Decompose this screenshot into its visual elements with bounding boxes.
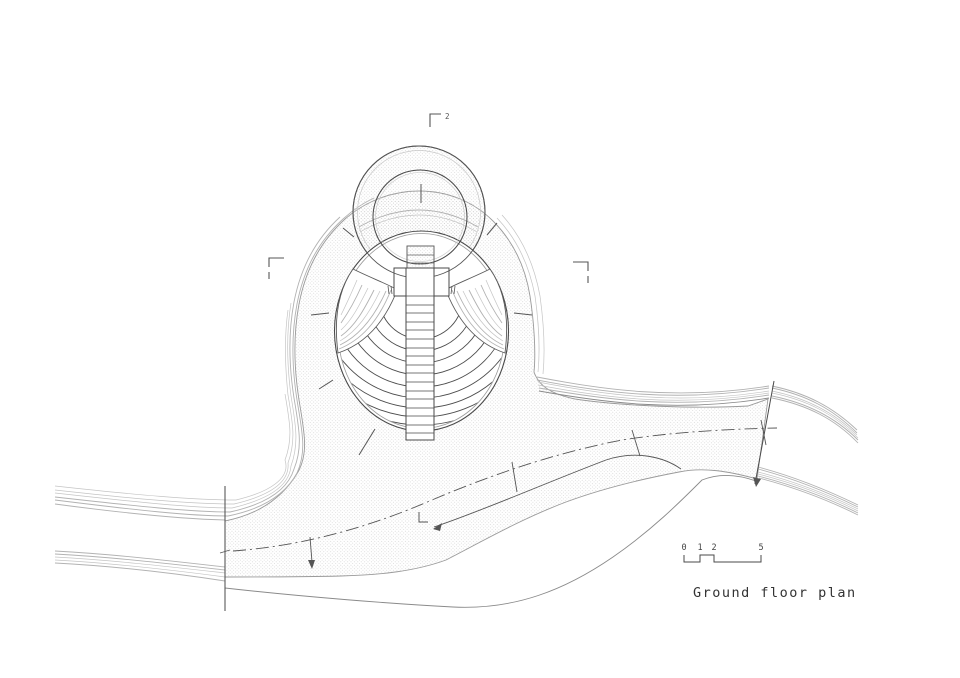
band-line xyxy=(55,303,296,508)
band-line xyxy=(772,388,857,433)
drawing-title: Ground floor plan xyxy=(693,585,857,601)
band-line xyxy=(55,560,225,577)
scale-bar-line xyxy=(684,555,761,562)
drawing-sheet: 2 0 1 2 5 Ground floor plan xyxy=(0,0,960,678)
band-line xyxy=(55,394,290,500)
section-marker-left xyxy=(269,258,284,267)
scale-tick-label-1: 1 xyxy=(697,543,702,553)
band-line xyxy=(55,563,225,581)
section-marker-top-label: 2 xyxy=(445,112,450,121)
scale-tick-label-5: 5 xyxy=(758,543,763,553)
plaza-outline xyxy=(225,191,768,577)
section-marker-right xyxy=(573,262,588,271)
scale-bar: 0 1 2 5 xyxy=(681,543,763,562)
section-marker-top xyxy=(430,114,441,127)
floor-plan-canvas: 2 0 1 2 5 Ground floor plan xyxy=(0,0,960,678)
plaza-surface xyxy=(225,191,768,577)
scale-tick-label-0: 0 xyxy=(681,543,686,553)
stair-run xyxy=(406,268,434,440)
band-line xyxy=(758,467,858,505)
band-line xyxy=(55,310,293,504)
scale-tick-label-2: 2 xyxy=(711,543,716,553)
band-line xyxy=(537,377,769,393)
band-line xyxy=(55,554,225,570)
band-line xyxy=(772,398,858,443)
